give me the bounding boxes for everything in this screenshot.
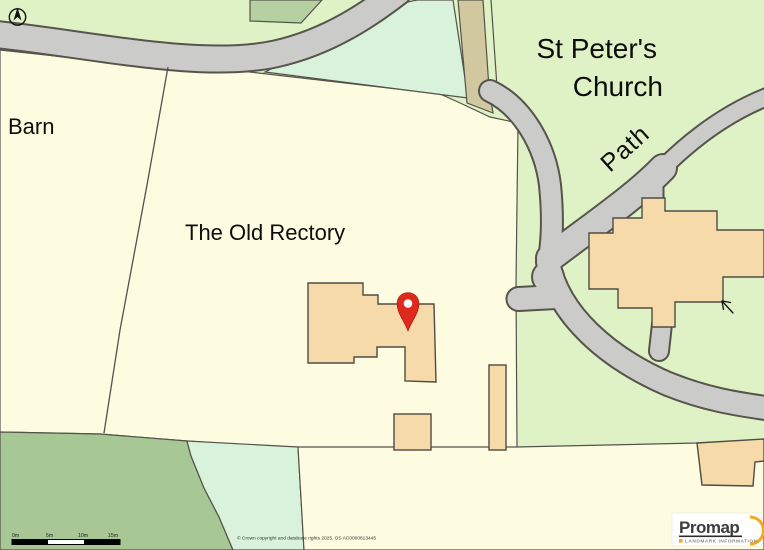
scale-tick-10: 10m	[78, 533, 88, 539]
promap-logo: Promap LANDMARK INFORMATION	[672, 513, 764, 546]
building-outbuilding-south	[394, 414, 431, 450]
map-canvas[interactable]: Barn The Old Rectory St Peter's Church P…	[0, 0, 764, 550]
label-barn: Barn	[8, 114, 54, 139]
building-outbuilding-east	[489, 365, 506, 450]
field-old-rectory-parcel	[0, 50, 518, 449]
scale-tick-0: 0m	[12, 533, 19, 539]
map-viewport[interactable]: Barn The Old Rectory St Peter's Church P…	[0, 0, 764, 550]
label-church-line2: Church	[573, 71, 663, 102]
logo-brand-text: Promap	[679, 518, 739, 537]
logo-tagline-text: LANDMARK INFORMATION	[685, 539, 758, 545]
scale-tick-15: 15m	[108, 533, 118, 539]
scale-tick-5: 5m	[46, 533, 53, 539]
label-old-rectory: The Old Rectory	[185, 220, 345, 245]
label-church-line1: St Peter's	[536, 33, 657, 64]
copyright-text: © Crown copyright and database rights 20…	[237, 535, 376, 542]
building-bottom-right	[697, 439, 764, 486]
logo-orange-square-icon	[679, 539, 683, 543]
